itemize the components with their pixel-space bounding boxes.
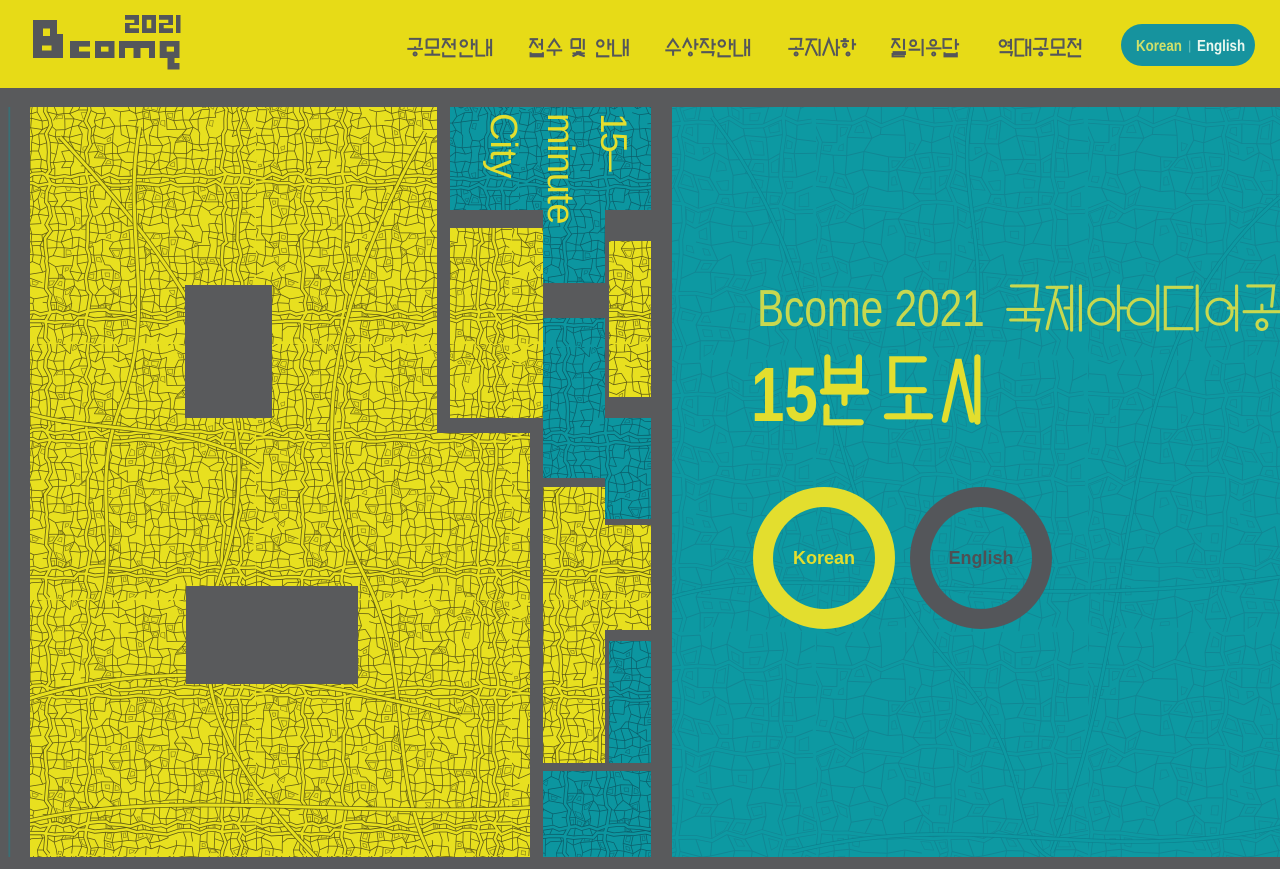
svg-text:|: |: [1188, 38, 1191, 53]
svg-text:minute: minute: [539, 113, 581, 224]
svg-text:Bcome 2021: Bcome 2021: [757, 279, 985, 337]
svg-text:English: English: [1197, 38, 1245, 55]
svg-text:English: English: [948, 548, 1013, 568]
svg-text:15: 15: [751, 351, 818, 438]
svg-text:Korean: Korean: [793, 548, 855, 568]
svg-text:City: City: [482, 113, 524, 178]
svg-text:Korean: Korean: [1136, 38, 1182, 55]
svg-text:15–: 15–: [593, 113, 634, 172]
